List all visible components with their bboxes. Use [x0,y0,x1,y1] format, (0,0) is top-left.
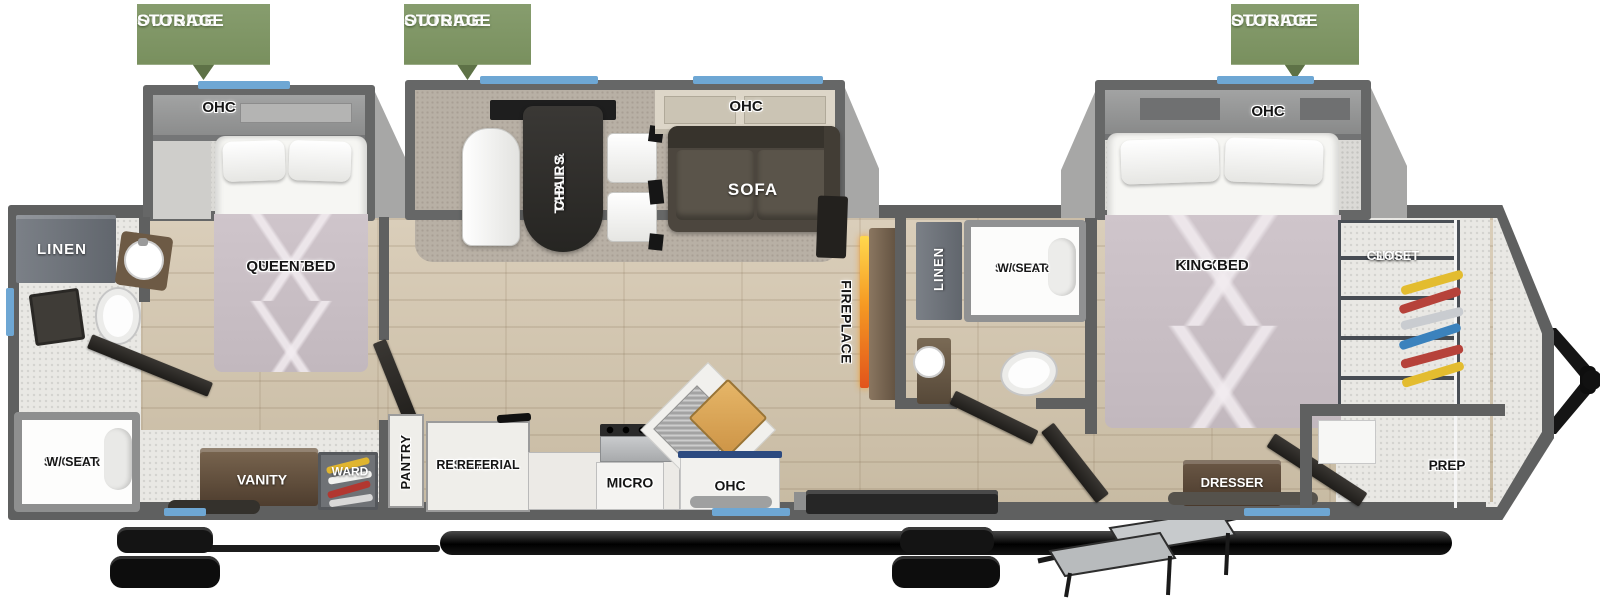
window [480,76,598,84]
ohc-cabinet-door [664,96,736,124]
bedroom-living-wall [379,217,389,340]
ohc-cabinet-panel [1300,98,1350,120]
bathroom-mirror [29,288,86,346]
sofa-label: SOFA [728,181,778,199]
sink-rear [124,240,164,280]
toilet-rear [95,287,141,345]
outside-storage-banner-mid: OUTSIDESTORAGE [404,4,531,80]
faucet [138,238,148,246]
queen-bed-pillow [222,140,285,182]
window [1244,508,1330,516]
sofa-back [668,126,840,148]
mid-bath-wall-left [895,218,906,406]
shower-seat [104,428,132,490]
king-bed-pillow [1120,137,1219,184]
wd-wall-top [1300,404,1505,416]
queen-bed-blanket [214,214,368,372]
window [6,288,14,336]
window [693,76,823,84]
entry-steps-rear [110,556,220,588]
king-bed-pillow [1224,137,1323,184]
kitchen-vent [690,496,772,508]
ohc-label: OHC [1251,104,1284,120]
outside-storage-banner-rear: OUTSIDESTORAGE [137,4,270,80]
floorplan-stage: OUTSIDESTORAGE OUTSIDESTORAGE OUTSIDESTO… [0,0,1600,600]
outside-storage-banner-front: OUTSIDESTORAGE [1231,4,1359,80]
slide-wedge [1371,88,1407,218]
kitchen-ohc-accent [678,451,782,458]
wd-wall-left [1300,404,1312,505]
shower-mid-seat [1048,238,1076,296]
tv [816,195,848,258]
mid-bath-wall-right [1085,218,1097,434]
wardrobe-label: WARD [332,466,369,479]
sink-mid [913,346,945,378]
window [712,508,790,516]
linen-label: LINEN [37,242,87,258]
window [164,508,206,516]
chaise-lounge [462,128,520,246]
entry-steps-main [900,527,994,553]
slide-wedge [1061,92,1095,218]
pantry-label: PANTRY [399,435,413,490]
dresser-label: DRESSER [1201,476,1264,490]
ohc-label: OHC [202,100,235,116]
microwave-label: MICRO [607,475,654,490]
bench-bracket [648,233,664,250]
entry-steps-rear [117,527,213,553]
queen-bed-pillow [288,140,351,182]
window [1217,76,1314,84]
window [198,81,290,89]
vanity-label: VANITY [237,472,287,487]
island-end-cabinet [794,492,806,510]
fireplace-flame [860,236,869,388]
kitchen-island [806,490,998,514]
kitchen-ohc-label: OHC [714,478,745,493]
ohc-label: OHC [729,99,762,115]
bed-runner [1168,492,1318,505]
entry-steps-main [892,556,1000,588]
slide-wedge [845,88,879,218]
linen-mid-label: LINEN [932,247,946,291]
ohc-cabinet-panel [1140,98,1220,120]
ohc-cabinet-lid [240,103,352,123]
fireplace-label: FIREPLACE [838,280,853,364]
king-bed-blanket [1105,215,1341,428]
washer-dryer-space [1318,420,1376,464]
bench-bracket [648,179,664,204]
